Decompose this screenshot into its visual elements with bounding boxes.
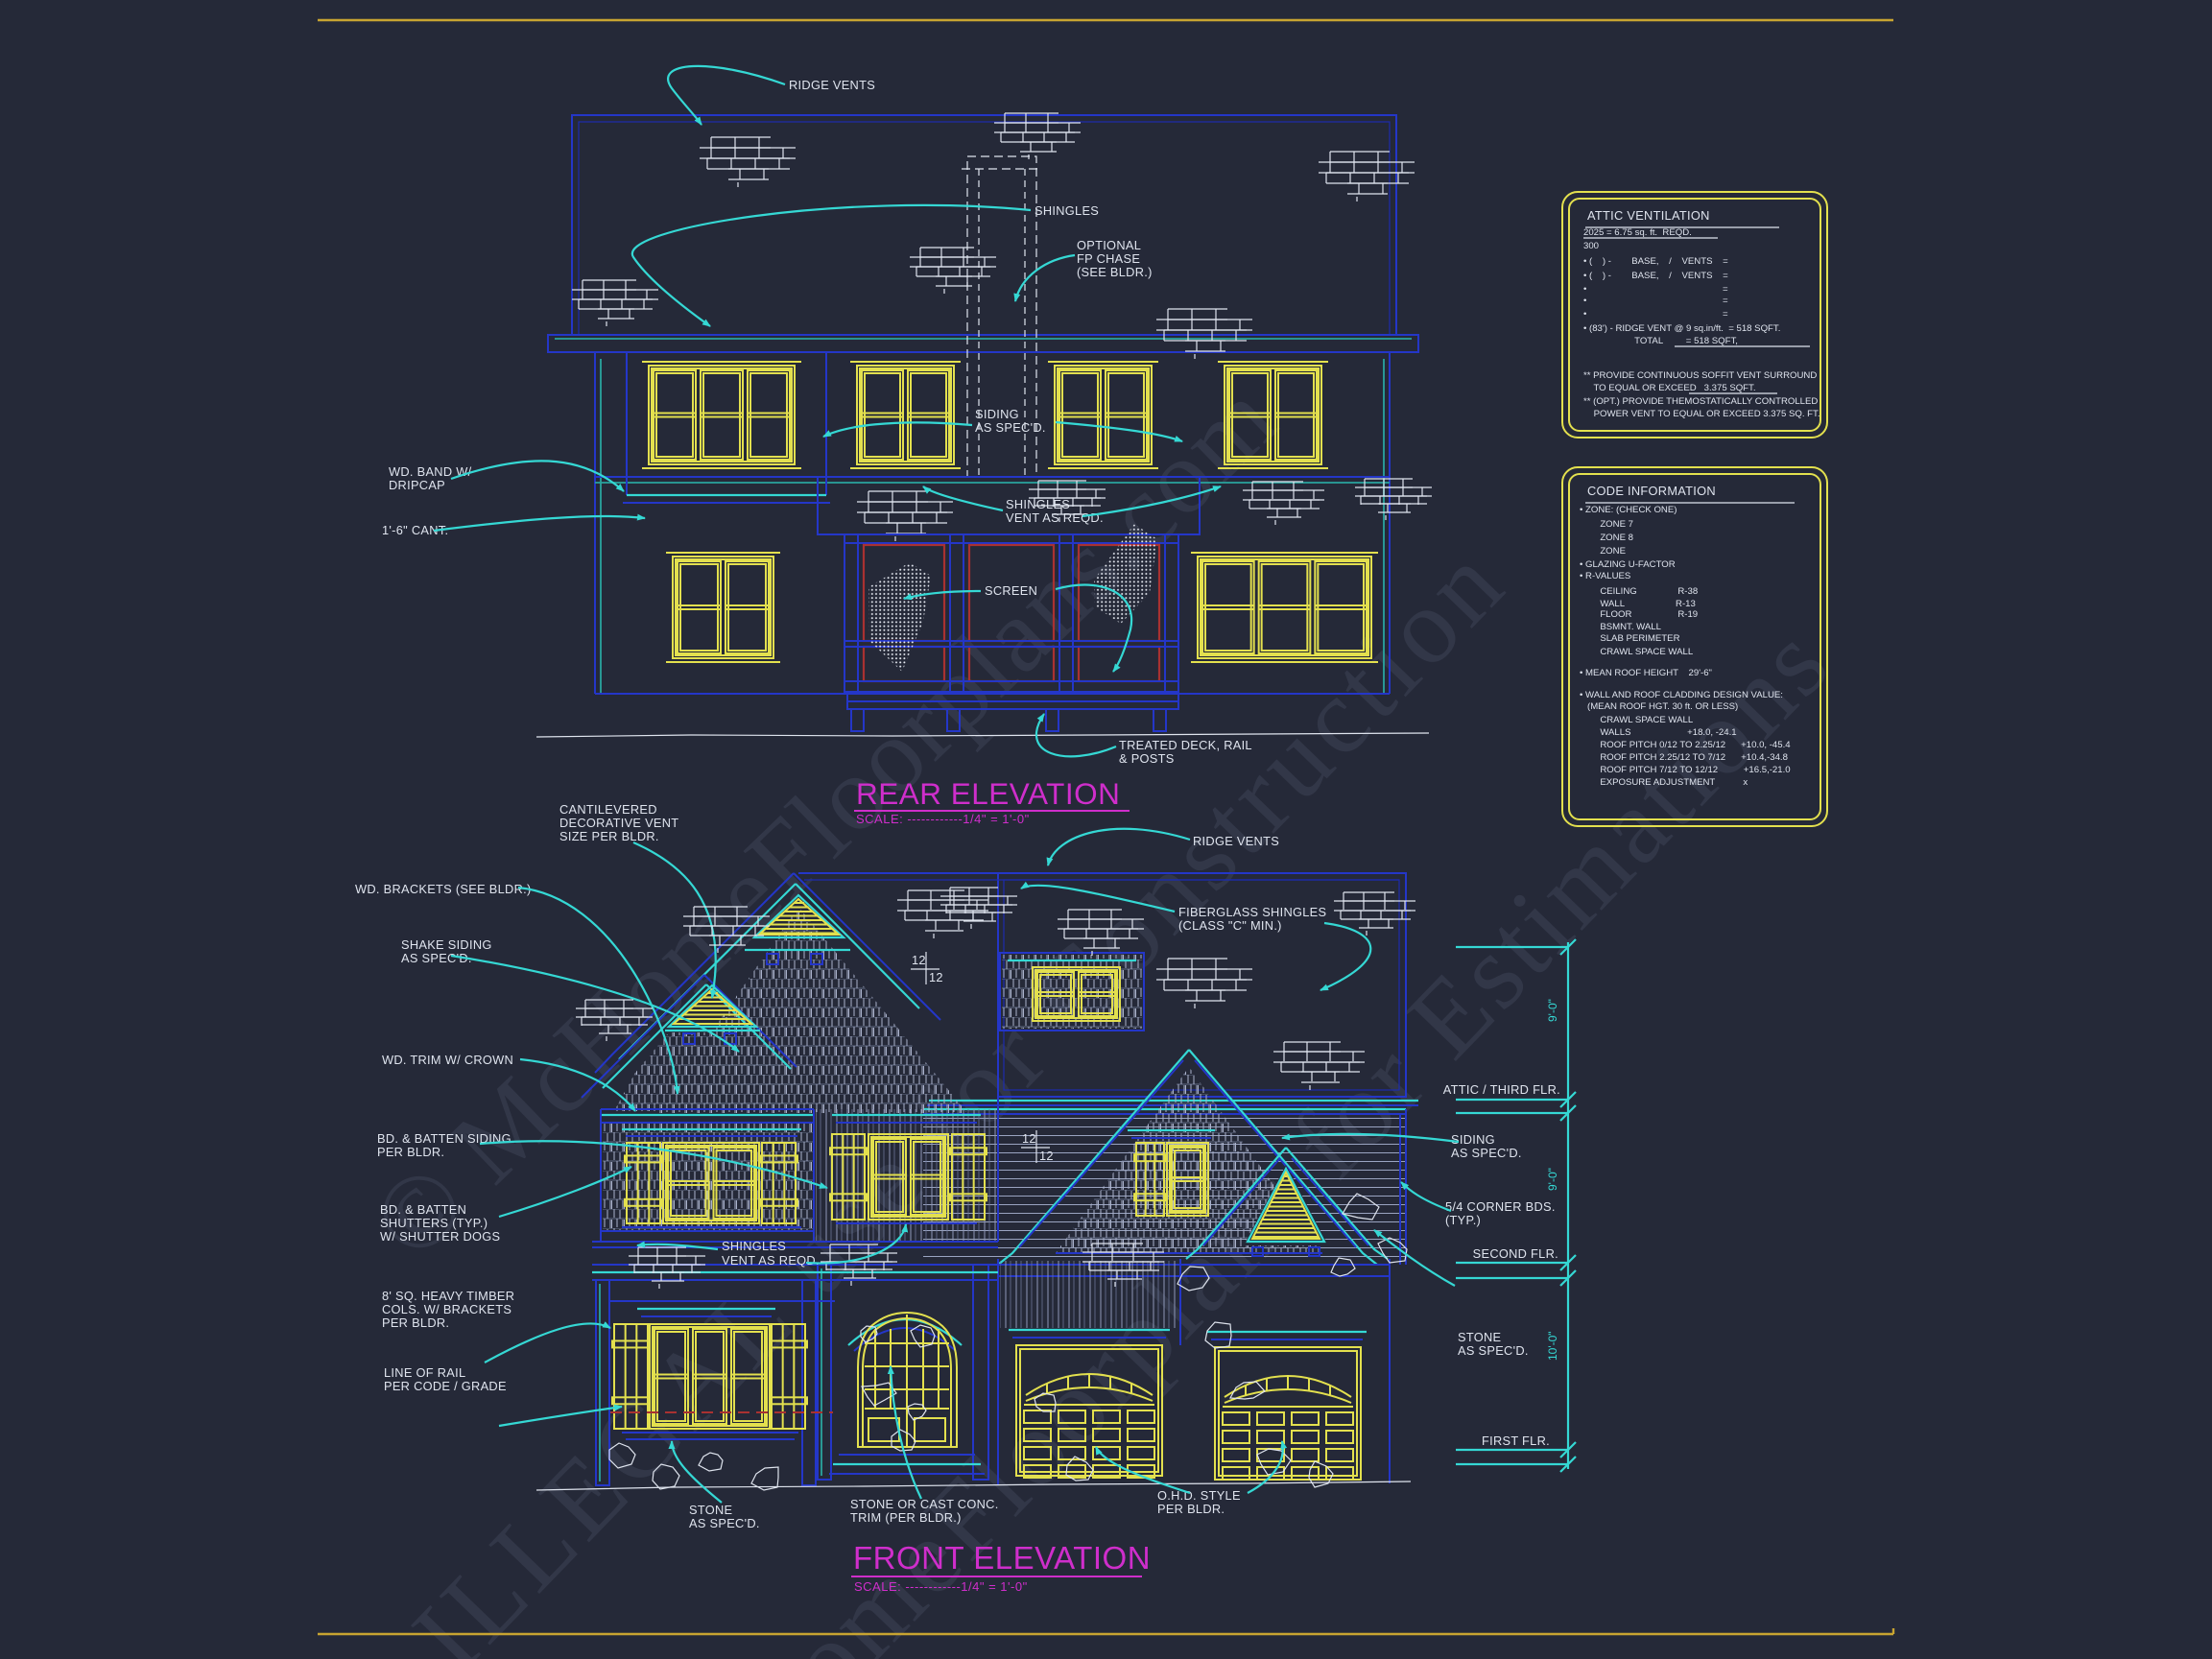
svg-text:SIDING: SIDING [975, 407, 1019, 421]
svg-text:CANTILEVERED: CANTILEVERED [559, 802, 657, 817]
svg-text:SECOND FLR.: SECOND FLR. [1473, 1246, 1558, 1261]
svg-text:TOTAL = 518 SQFT,: TOTAL = 518 SQFT, [1583, 336, 1738, 346]
svg-text:2025 = 6.75 sq. ft. REQD.: 2025 = 6.75 sq. ft. REQD. [1583, 227, 1692, 238]
svg-text:ZONE: ZONE [1580, 546, 1626, 557]
svg-text:& POSTS: & POSTS [1119, 751, 1175, 766]
svg-text:10'-0": 10'-0" [1546, 1331, 1559, 1361]
svg-text:WALL R-13: WALL R-13 [1580, 599, 1696, 609]
svg-text:RIDGE VENTS: RIDGE VENTS [1193, 834, 1279, 848]
svg-text:REAR ELEVATION: REAR ELEVATION [856, 776, 1120, 811]
svg-text:• GLAZING U-FACTOR: • GLAZING U-FACTOR [1580, 559, 1676, 570]
svg-text:CRAWL SPACE WALL: CRAWL SPACE WALL [1580, 715, 1694, 725]
svg-text:• ZONE: (CHECK ONE): • ZONE: (CHECK ONE) [1580, 505, 1677, 515]
svg-text:CRAWL SPACE WALL: CRAWL SPACE WALL [1580, 647, 1694, 657]
svg-text:• ( ) - BASE, /: • ( ) - BASE, / VENTS = [1583, 271, 1728, 281]
svg-text:BSMNT. WALL: BSMNT. WALL [1580, 622, 1662, 632]
svg-text:• ( ) - BASE, /: • ( ) - BASE, / VENTS = [1583, 256, 1728, 267]
svg-text:TO EQUAL OR EXCEED 3.375 SQF: TO EQUAL OR EXCEED 3.375 SQFT. [1583, 383, 1756, 393]
svg-text:SHINGLES: SHINGLES [1035, 203, 1099, 218]
svg-text:• (83') - RIDGE VENT @ 9 sq.in: • (83') - RIDGE VENT @ 9 sq.in/ft. = 518… [1583, 323, 1780, 334]
svg-text:** (OPT.) PROVIDE THEMOSTATICA: ** (OPT.) PROVIDE THEMOSTATICALLY CONTRO… [1583, 396, 1818, 407]
svg-text:LINE OF RAIL: LINE OF RAIL [384, 1365, 465, 1380]
svg-text:ZONE 7: ZONE 7 [1580, 519, 1633, 530]
svg-text:=: = [1723, 309, 1728, 320]
svg-text:VENT AS REQD.: VENT AS REQD. [1006, 510, 1104, 525]
svg-text:SIZE PER BLDR.: SIZE PER BLDR. [559, 829, 659, 843]
svg-text:STONE: STONE [689, 1503, 732, 1517]
svg-text:SHINGLES: SHINGLES [722, 1239, 786, 1253]
svg-text:ATTIC VENTILATION: ATTIC VENTILATION [1587, 208, 1710, 223]
svg-text:RIDGE VENTS: RIDGE VENTS [789, 78, 875, 92]
svg-text:• WALL AND ROOF CLADDING DESIG: • WALL AND ROOF CLADDING DESIGN VALUE: [1580, 690, 1783, 700]
svg-text:=: = [1723, 284, 1728, 295]
svg-text:** PROVIDE CONTINUOUS SOFFIT V: ** PROVIDE CONTINUOUS SOFFIT VENT SURROU… [1583, 370, 1817, 381]
svg-text:(SEE BLDR.): (SEE BLDR.) [1077, 265, 1153, 279]
svg-text:CEILING R-38: CEILING R-38 [1580, 586, 1698, 597]
svg-text:SHUTTERS (TYP.): SHUTTERS (TYP.) [380, 1216, 488, 1230]
svg-text:TRIM (PER BLDR.): TRIM (PER BLDR.) [850, 1510, 962, 1525]
svg-text:CODE INFORMATION: CODE INFORMATION [1587, 484, 1716, 498]
svg-text:SLAB PERIMETER: SLAB PERIMETER [1580, 633, 1680, 644]
svg-text:SCREEN: SCREEN [985, 583, 1037, 598]
svg-text:ATTIC / THIRD FLR.: ATTIC / THIRD FLR. [1443, 1082, 1560, 1097]
svg-text:12: 12 [929, 970, 943, 984]
svg-text:DECORATIVE VENT: DECORATIVE VENT [559, 816, 678, 830]
svg-text:ROOF PITCH 0/12 TO 2.25/12: ROOF PITCH 0/12 TO 2.25/12 +10.0, -45.4 [1580, 740, 1791, 750]
svg-text:•: • [1583, 296, 1586, 306]
svg-text:SCALE: ------------1/4" = 1'-0: SCALE: ------------1/4" = 1'-0" [854, 1579, 1028, 1594]
svg-text:FRONT ELEVATION: FRONT ELEVATION [853, 1540, 1151, 1576]
svg-text:FP CHASE: FP CHASE [1077, 251, 1140, 266]
svg-text:•: • [1583, 284, 1586, 295]
svg-text:WD. TRIM W/ CROWN: WD. TRIM W/ CROWN [382, 1053, 513, 1067]
svg-text:VENT AS REQD.: VENT AS REQD. [722, 1253, 820, 1268]
svg-text:BD. & BATTEN: BD. & BATTEN [380, 1202, 466, 1217]
svg-text:AS SPEC'D.: AS SPEC'D. [975, 420, 1046, 435]
svg-text:FIRST FLR.: FIRST FLR. [1482, 1434, 1550, 1448]
svg-text:PER CODE / GRADE: PER CODE / GRADE [384, 1379, 507, 1393]
svg-text:OPTIONAL: OPTIONAL [1077, 238, 1141, 252]
svg-text:POWER VENT TO EQUAL OR EXCEED: POWER VENT TO EQUAL OR EXCEED 3.375 SQ. … [1583, 409, 1820, 419]
svg-text:WD. BRACKETS (SEE BLDR.): WD. BRACKETS (SEE BLDR.) [355, 882, 532, 896]
svg-text:WALLS +18: WALLS +18.0, -24.1 [1580, 727, 1737, 738]
svg-text:(TYP.): (TYP.) [1445, 1213, 1481, 1227]
svg-text:O.H.D. STYLE: O.H.D. STYLE [1157, 1488, 1241, 1503]
svg-text:EXPOSURE ADJUSTMENT: EXPOSURE ADJUSTMENT x [1580, 777, 1748, 788]
svg-text:12: 12 [912, 953, 926, 967]
svg-text:STONE: STONE [1458, 1330, 1501, 1344]
svg-text:ZONE 8: ZONE 8 [1580, 533, 1633, 543]
svg-text:FIBERGLASS SHINGLES: FIBERGLASS SHINGLES [1178, 905, 1326, 919]
svg-text:SHINGLES: SHINGLES [1006, 497, 1070, 511]
svg-text:9'-0": 9'-0" [1546, 999, 1559, 1022]
svg-text:ROOF PITCH 7/12 TO 12/12: ROOF PITCH 7/12 TO 12/12 +16.5,-21.0 [1580, 765, 1791, 775]
svg-text:PER BLDR.: PER BLDR. [382, 1315, 449, 1330]
svg-text:• R-VALUES: • R-VALUES [1580, 571, 1630, 581]
svg-text:(MEAN ROOF HGT. 30 ft. OR LESS: (MEAN ROOF HGT. 30 ft. OR LESS) [1580, 701, 1738, 712]
svg-text:300: 300 [1583, 241, 1599, 251]
svg-text:ROOF PITCH 2.25/12 TO 7/12: ROOF PITCH 2.25/12 TO 7/12 +10.4,-34.8 [1580, 752, 1788, 763]
svg-text:FLOOR R-19: FLOOR R-19 [1580, 609, 1698, 620]
svg-text:SIDING: SIDING [1451, 1132, 1495, 1147]
svg-text:PER BLDR.: PER BLDR. [1157, 1502, 1225, 1516]
svg-text:12: 12 [1022, 1131, 1036, 1146]
svg-text:W/ SHUTTER DOGS: W/ SHUTTER DOGS [380, 1229, 500, 1244]
svg-text:DRIPCAP: DRIPCAP [389, 478, 445, 492]
svg-text:(CLASS "C" MIN.): (CLASS "C" MIN.) [1178, 918, 1282, 933]
svg-text:SHAKE SIDING: SHAKE SIDING [401, 937, 492, 952]
svg-text:•: • [1583, 309, 1586, 320]
svg-text:5/4 CORNER BDS.: 5/4 CORNER BDS. [1445, 1199, 1556, 1214]
svg-text:COLS. W/ BRACKETS: COLS. W/ BRACKETS [382, 1302, 511, 1316]
svg-text:PER BLDR.: PER BLDR. [377, 1145, 444, 1159]
svg-text:STONE OR CAST CONC.: STONE OR CAST CONC. [850, 1497, 999, 1511]
svg-text:AS SPEC'D.: AS SPEC'D. [1451, 1146, 1522, 1160]
svg-text:9'-0": 9'-0" [1546, 1168, 1559, 1191]
svg-text:SCALE: ------------1/4" = 1'-0: SCALE: ------------1/4" = 1'-0" [856, 812, 1030, 826]
svg-text:=: = [1723, 296, 1728, 306]
svg-text:12: 12 [1039, 1149, 1054, 1163]
svg-text:TREATED DECK, RAIL: TREATED DECK, RAIL [1119, 738, 1252, 752]
svg-text:AS SPEC'D.: AS SPEC'D. [689, 1516, 760, 1530]
svg-text:AS SPEC'D.: AS SPEC'D. [1458, 1343, 1529, 1358]
svg-text:8' SQ. HEAVY TIMBER: 8' SQ. HEAVY TIMBER [382, 1289, 514, 1303]
svg-text:• MEAN ROOF HEIGHT 29'-6": • MEAN ROOF HEIGHT 29'-6" [1580, 668, 1712, 678]
